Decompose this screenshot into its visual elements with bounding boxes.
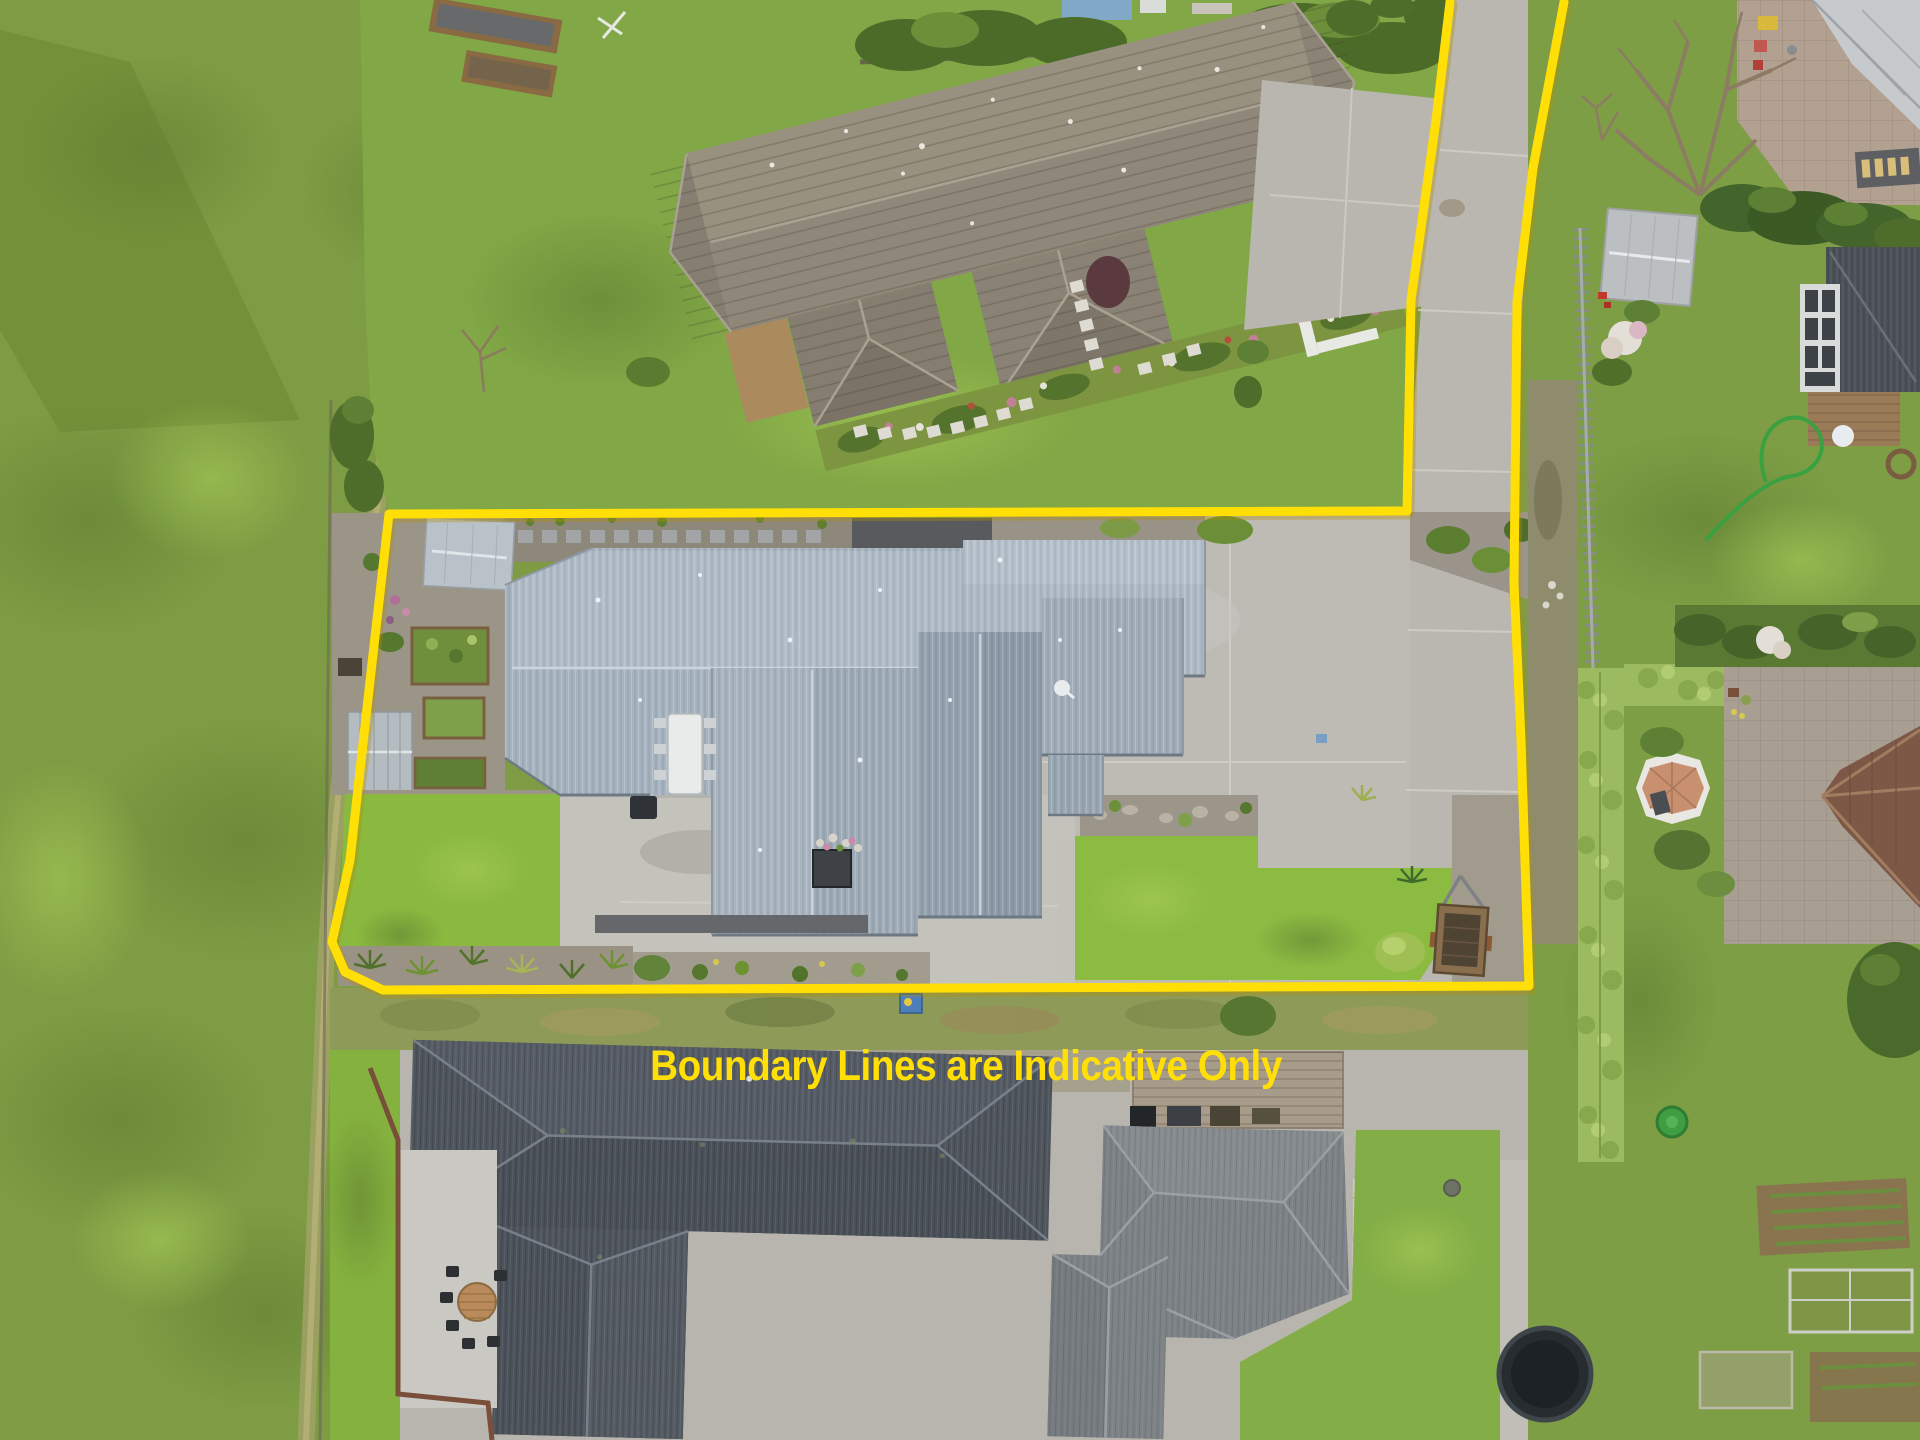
yellow-dash-grating [1855, 148, 1920, 188]
trampoline [1499, 1328, 1591, 1420]
red-leaf-shrub [1086, 256, 1130, 308]
conservatory [1800, 284, 1840, 392]
lawn-edge-path [1058, 836, 1075, 980]
aerial-property-photo: Boundary Lines are Indicative Only [0, 0, 1920, 1440]
east-house-dark-roof [1826, 247, 1920, 392]
blue-object [900, 994, 922, 1013]
south-garden-strip [338, 946, 930, 988]
raised-vege-beds [412, 628, 488, 788]
top-neighbor-property [330, 0, 1480, 513]
manhole [1444, 1180, 1460, 1196]
east-flower-band [1674, 605, 1920, 667]
dark-paver-band [595, 915, 868, 933]
blue-chalk-mark [1316, 734, 1327, 743]
neighbour-pool [1062, 0, 1132, 20]
toy-yellow [1758, 16, 1778, 30]
garden-shed-east [1600, 208, 1698, 306]
house-wing-east [918, 632, 1042, 917]
house-wing-center [712, 668, 918, 935]
gazebo [1636, 752, 1710, 824]
disclaimer-text: Boundary Lines are Indicative Only [650, 1041, 1282, 1089]
garden-shed [423, 518, 514, 591]
toy-red [1754, 40, 1767, 52]
bbq [630, 796, 657, 819]
east-neighbors [1499, 0, 1920, 1440]
disclaimer-wrap: Boundary Lines are Indicative Only [650, 1041, 1282, 1089]
red-item [1598, 292, 1607, 299]
satellite-dish-east [1832, 425, 1854, 447]
compost-bin [338, 658, 362, 676]
driveway-stain [1439, 199, 1465, 217]
